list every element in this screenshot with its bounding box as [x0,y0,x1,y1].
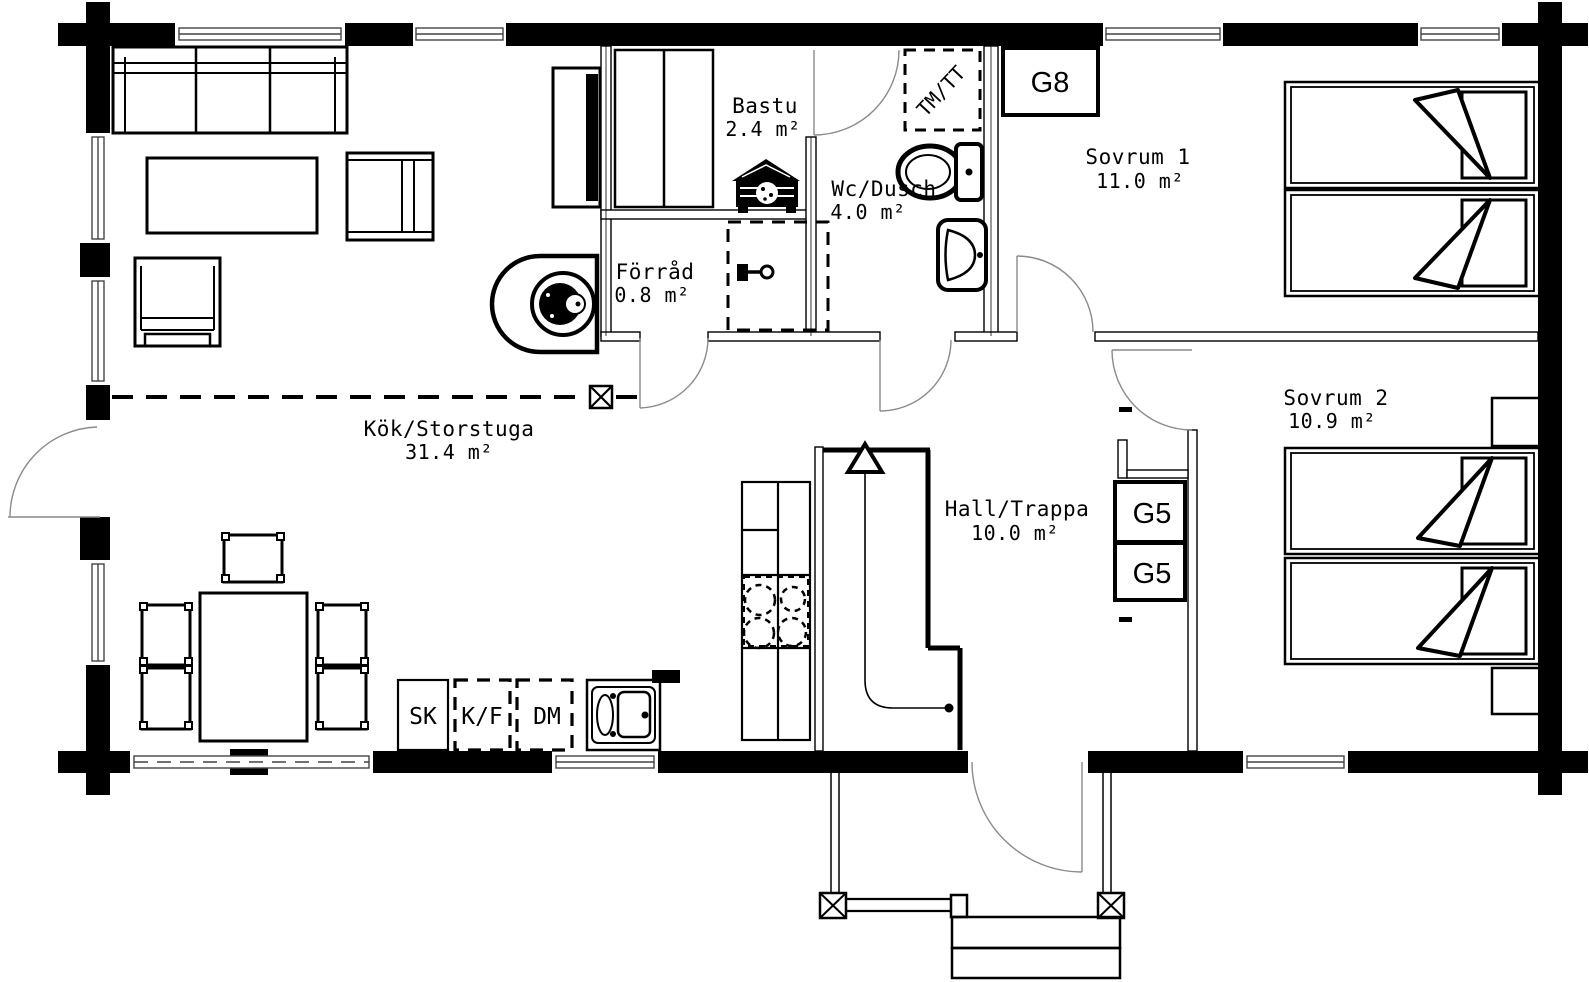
wardrobe-cabinet [553,68,600,207]
chair [222,533,284,582]
chair [140,666,192,729]
bed [1285,448,1540,554]
bed [1285,190,1540,296]
room-label-wc: Wc/Dusch [831,177,936,201]
porch-post [1098,893,1124,918]
washbasin [938,220,986,290]
room-area-sovrum2: 10.9 m² [1288,409,1376,433]
faucet [652,670,680,683]
sofa [113,47,347,133]
stove-burners [744,577,808,648]
door-forrad [640,338,708,408]
room-label-sovrum1: Sovrum 1 [1085,145,1190,169]
window [1247,756,1344,768]
window [92,564,104,661]
room-label-kok: Kök/Storstuga [364,417,535,441]
kitchen-tall-counter [742,482,810,740]
room-label-bastu: Bastu [732,94,798,118]
dining-table [200,593,307,741]
porch-step [952,917,1120,948]
room-area-wc: 4.0 m² [830,200,905,224]
fireplace [492,256,597,352]
armchair-bottom [135,258,220,346]
floor-plan: Kök/Storstuga 31.4 m² Bastu 2.4 m² Förrå… [0,0,1589,982]
sauna-benches [615,50,713,207]
entrance-porch [820,773,1124,978]
closet-label-g8: G8 [1031,67,1070,99]
appliance-label-kf: K/F [461,704,503,730]
armchair-right [347,153,433,240]
sauna-heater [732,159,800,213]
railing-newel [951,895,967,917]
support-post [590,386,612,408]
sovrum1-beds [1285,82,1540,296]
loft-edge-dashed-line [112,386,638,408]
appliance-label-dm: DM [533,704,561,730]
window [556,756,654,768]
room-area-forrad: 0.8 m² [614,283,689,307]
closet-label-g5-upper: G5 [1133,498,1172,530]
appliance-label-tmtt: TM/TT [912,61,971,121]
window [134,756,369,768]
chair [316,666,368,729]
latch-symbol [737,264,773,281]
room-label-hall: Hall/Trappa [945,497,1090,521]
labels: Kök/Storstuga 31.4 m² Bastu 2.4 m² Förrå… [364,61,1389,730]
closet-label-g5-lower: G5 [1133,558,1172,590]
door-sauna [814,50,899,135]
window [179,28,341,40]
door-wc [880,340,951,411]
nightstand [1492,398,1540,446]
door-sovrum1 [1017,256,1093,332]
window [92,137,104,239]
window [1106,28,1220,40]
chair [140,603,192,665]
porch-step [952,948,1120,978]
door-entrance [972,762,1082,872]
window [1421,28,1499,40]
room-area-kok: 31.4 m² [405,440,493,464]
bed [1285,558,1540,664]
room-area-bastu: 2.4 m² [725,117,800,141]
appliance-label-sk: SK [409,704,437,730]
room-area-hall: 10.0 m² [971,521,1059,545]
staircase [823,444,960,750]
room-label-sovrum2: Sovrum 2 [1283,386,1388,410]
porch-post [820,893,846,918]
room-label-forrad: Förråd [616,259,695,284]
window [416,28,503,40]
window [92,281,104,381]
chair [316,603,368,665]
door-sovrum2 [1112,350,1192,430]
room-area-sovrum1: 11.0 m² [1096,169,1184,193]
kitchen-sink-unit [587,670,680,750]
sovrum2-beds [1285,398,1540,714]
nightstand [1492,668,1540,714]
bed [1285,82,1540,188]
coffee-table [147,158,317,233]
